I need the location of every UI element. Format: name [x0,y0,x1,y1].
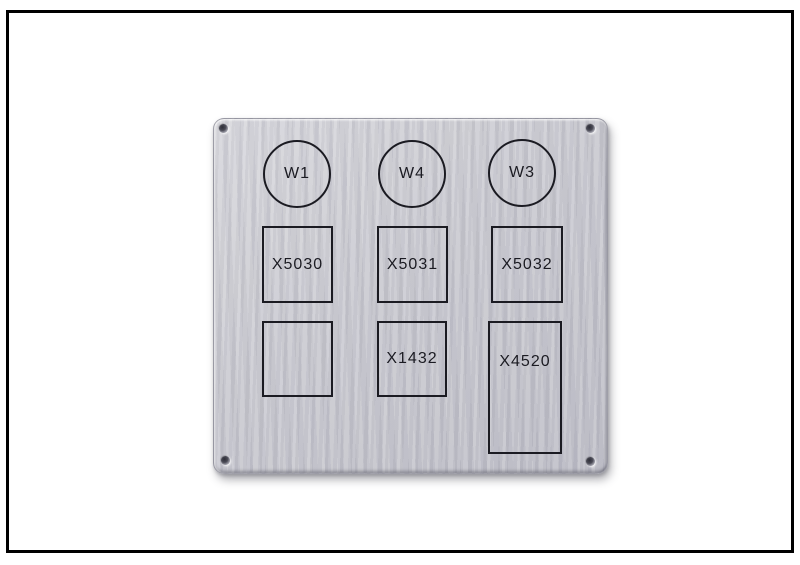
image-frame: W1 W4 W3 X5030 X5031 X5032 X1 [6,10,794,553]
rect-label: X1432 [386,350,437,368]
screw-hole-top-left [219,124,228,133]
rect-label: X5031 [387,256,438,274]
screw-hole-bottom-left [221,456,230,465]
circle-marking-w3: W3 [488,139,556,207]
circle-label: W1 [284,165,310,183]
rect-marking-x5031: X5031 [377,226,448,303]
photo-canvas: W1 W4 W3 X5030 X5031 X5032 X1 [0,0,800,565]
rect-marking-x1432: X1432 [377,321,447,397]
screw-hole-bottom-right [586,457,595,466]
rect-label: X4520 [499,353,550,371]
rect-marking-x4520: X4520 [488,321,562,454]
rect-marking-empty [262,321,333,397]
marking-plate: W1 W4 W3 X5030 X5031 X5032 X1 [213,118,608,474]
circle-label: W3 [509,164,535,182]
circle-marking-w1: W1 [263,140,331,208]
circle-label: W4 [399,165,425,183]
rect-label: X5030 [272,256,323,274]
rect-marking-x5030: X5030 [262,226,333,303]
screw-hole-top-right [586,124,595,133]
rect-marking-x5032: X5032 [491,226,563,303]
rect-label: X5032 [501,256,552,274]
circle-marking-w4: W4 [378,140,446,208]
